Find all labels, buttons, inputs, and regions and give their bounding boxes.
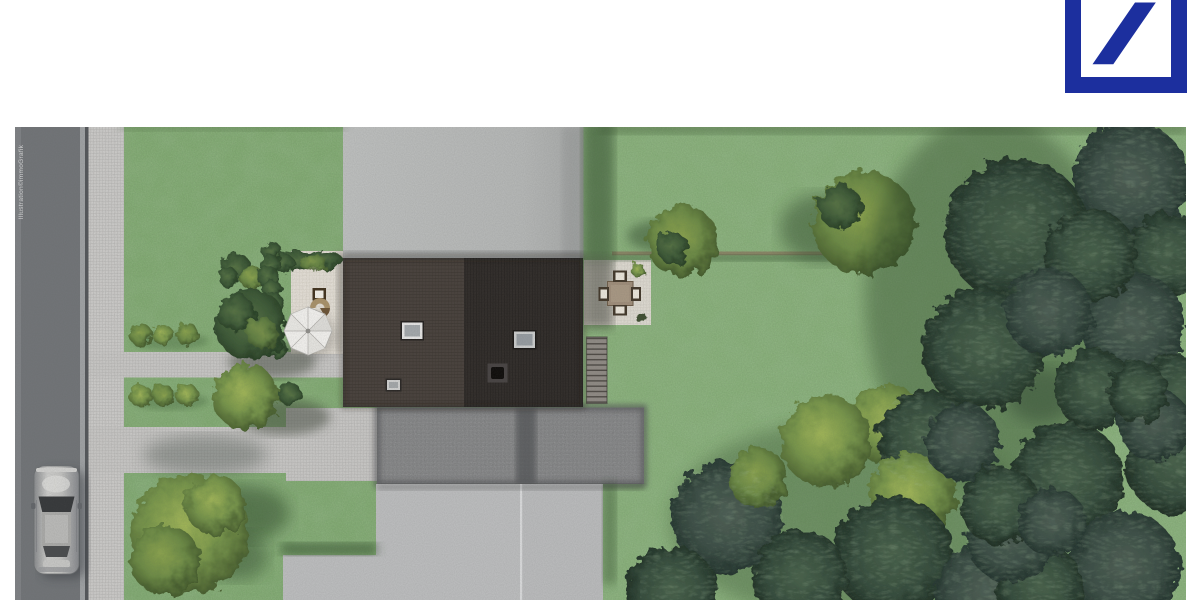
svg-text:Illustration©immoGrafik: Illustration©immoGrafik [17,144,25,219]
